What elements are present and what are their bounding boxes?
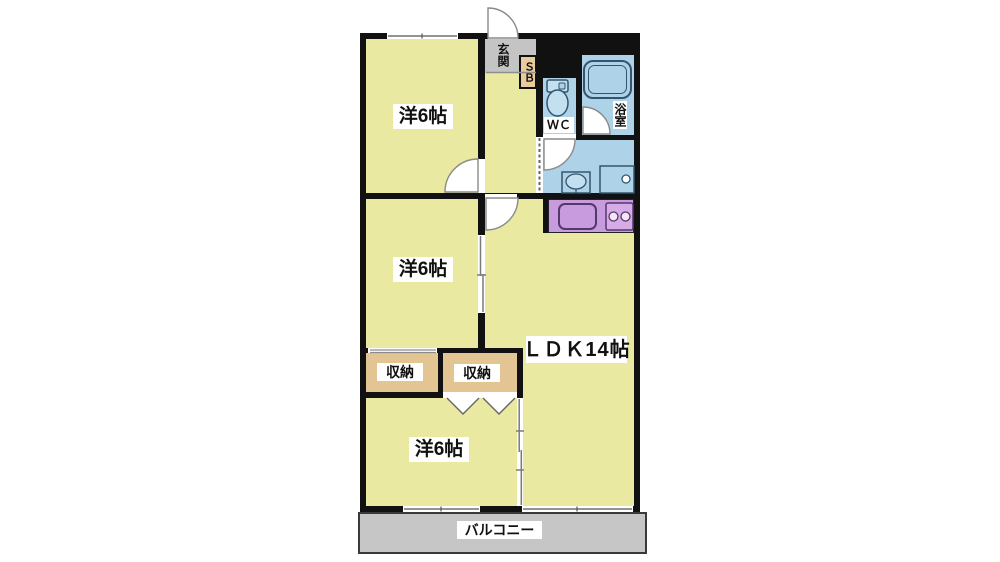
floorplan-canvas: ＳＢ <box>0 0 1000 562</box>
room-top-label-text: 洋6帖 <box>399 107 448 126</box>
closet-right-label: 収納 <box>454 364 500 382</box>
balcony-label: バルコニー <box>457 521 542 539</box>
wall-segment <box>634 33 640 512</box>
wall-segment <box>582 39 634 55</box>
ldk-label-text: ＬＤＫ14帖 <box>522 340 630 360</box>
kitchen-counter <box>548 199 634 233</box>
entrance-label: 玄関 <box>497 43 509 67</box>
shoe-box: ＳＢ <box>519 55 537 89</box>
wall-segment <box>438 348 443 398</box>
wall-segment <box>536 39 543 137</box>
wall-segment <box>478 199 485 235</box>
room-top-label: 洋6帖 <box>393 104 453 129</box>
bath-label: 浴室 <box>613 101 627 129</box>
wall-segment <box>543 39 576 78</box>
room-middle-label-text: 洋6帖 <box>399 260 448 279</box>
hall-ldk-door-gap <box>485 194 517 199</box>
entrance-door-gap <box>488 33 518 39</box>
sliding-door-gap-room3 <box>517 398 523 506</box>
room-middle-label: 洋6帖 <box>393 257 453 282</box>
sliding-door-gap-room2 <box>478 235 485 313</box>
wall-segment <box>360 392 443 398</box>
wall-segment <box>543 199 548 233</box>
wall-segment <box>360 33 366 512</box>
washroom-area <box>543 140 634 193</box>
room-bottom-label: 洋6帖 <box>409 437 469 462</box>
balcony-label-text: バルコニー <box>465 523 535 537</box>
wc-label: ＷＣ <box>544 117 574 133</box>
wall-segment <box>478 39 485 159</box>
shoe-box-label: ＳＢ <box>523 61 534 83</box>
window-gap-bottom-right <box>522 506 633 512</box>
wall-segment <box>576 135 634 140</box>
washroom-entry-strip <box>536 137 543 193</box>
room-bottom-label-text: 洋6帖 <box>415 440 464 459</box>
wall-segment <box>478 313 485 348</box>
ldk-label: ＬＤＫ14帖 <box>526 336 627 363</box>
wc-label-text: ＷＣ <box>547 119 571 131</box>
closet-right-folding-gap <box>443 392 517 398</box>
window-gap-bottom-left <box>403 506 480 512</box>
closet-left-door-gap <box>368 348 437 353</box>
closet-right-label-text: 収納 <box>463 366 491 380</box>
closet-left-label: 収納 <box>377 363 423 381</box>
window-gap-top <box>387 33 458 39</box>
room1-door-gap <box>478 159 485 193</box>
closet-left-label-text: 収納 <box>386 365 414 379</box>
washroom-door-leaf <box>543 134 576 140</box>
